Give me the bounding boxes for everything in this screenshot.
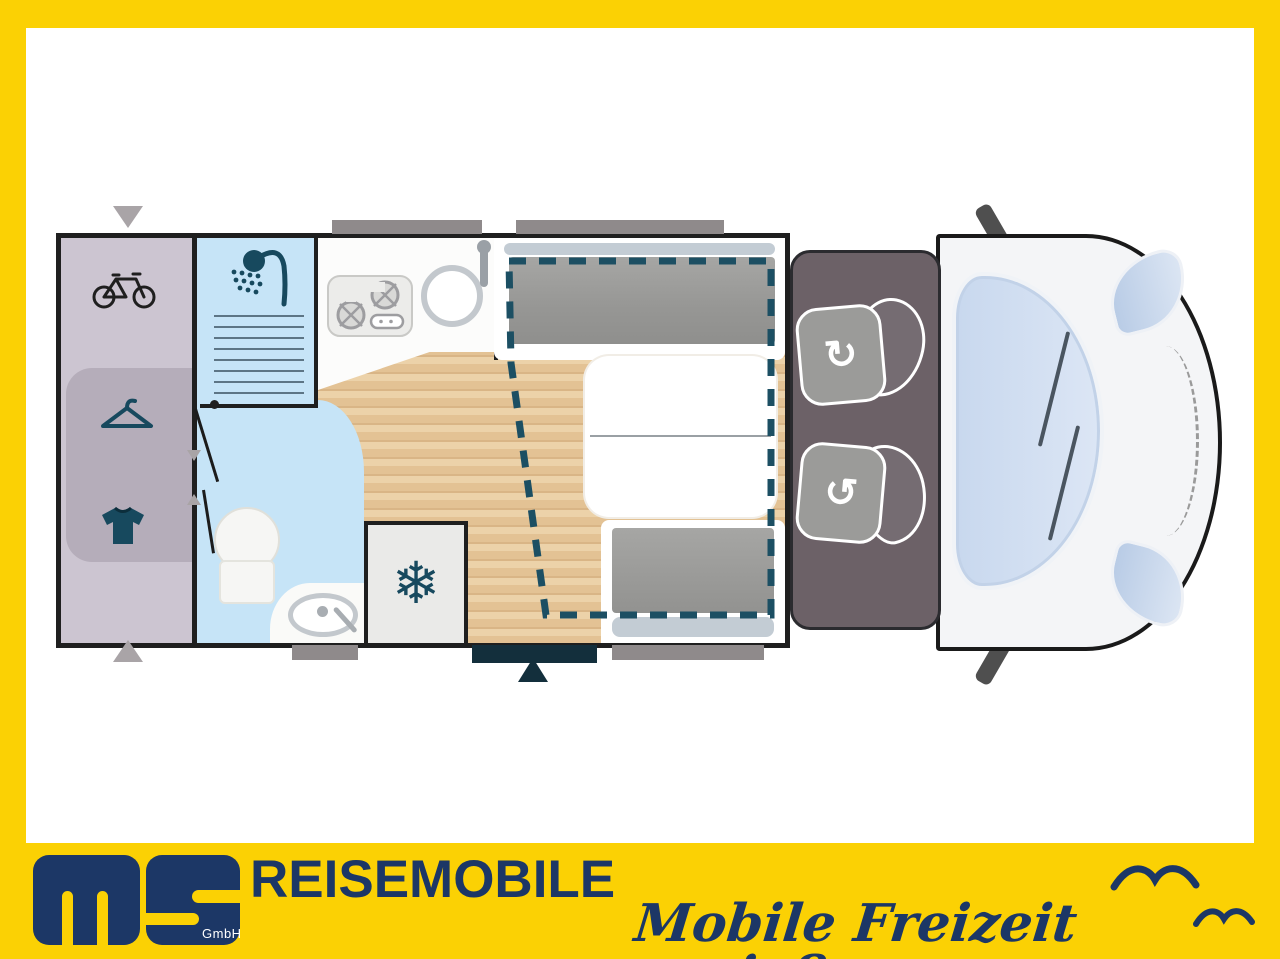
seagull-icon-large [1108, 853, 1200, 899]
logo-letter-m [33, 855, 140, 945]
brand-title: REISEMOBILE [250, 853, 615, 906]
garage-door-arrow-top [113, 206, 143, 228]
advert-canvas: ❄ ↻ ↺ G [0, 0, 1280, 959]
logo-s-slot-left [146, 913, 199, 925]
garage-door-arrow-bottom [113, 640, 143, 662]
window-rear-bench [612, 645, 764, 660]
window-dinette [516, 220, 724, 234]
rotate-cw-icon: ↻ [823, 334, 860, 377]
logo-m-slot-1 [62, 891, 73, 945]
entrance-arrow [518, 658, 548, 682]
swivel-seat-bottom: ↺ [794, 440, 888, 545]
swivel-seat-top: ↻ [794, 302, 888, 407]
logo-gmbh: GmbH [202, 926, 242, 941]
rotate-ccw-icon: ↺ [823, 472, 860, 515]
brand-tagline: Mobile Freizeit genießen. [627, 898, 1280, 959]
logo-s-slot-right [192, 890, 240, 903]
seagull-icon-small [1192, 900, 1256, 934]
window-bathroom [292, 645, 358, 660]
window-kitchen [332, 220, 482, 234]
habitation-walls [56, 233, 790, 648]
logo-m-slot-2 [97, 891, 108, 945]
